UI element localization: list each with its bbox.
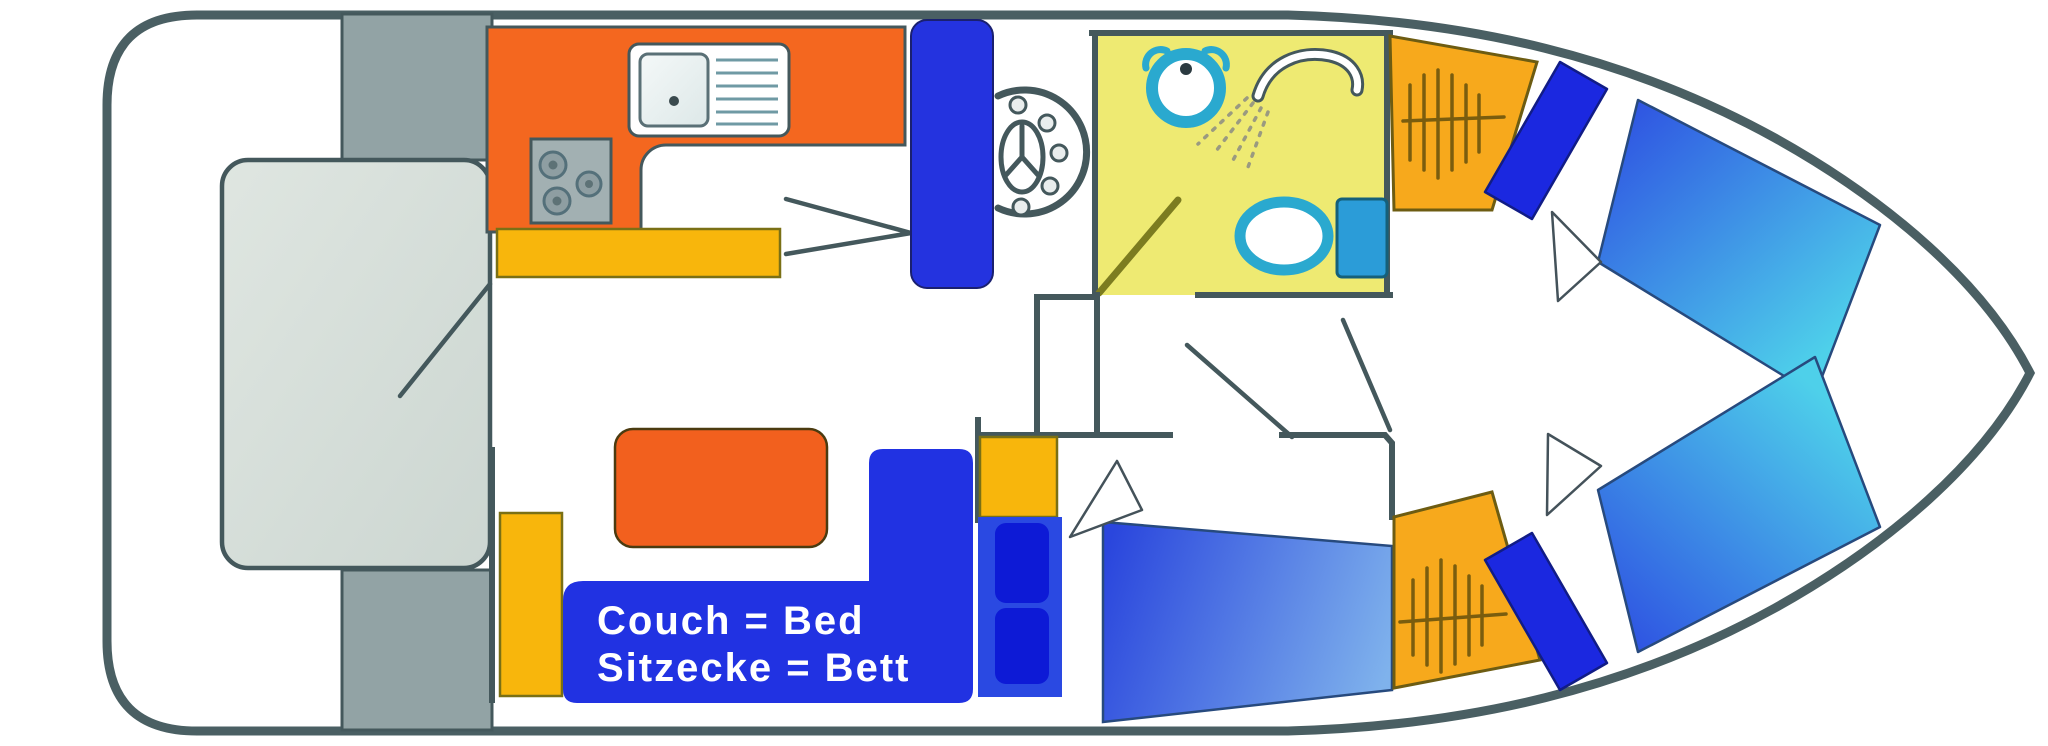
legend-line-2: Sitzecke = Bett [597,646,910,690]
companionway-steps-icon [978,517,1062,697]
toilet-icon [1240,199,1387,277]
corridor-step-table [980,437,1057,517]
helm-seat [911,20,993,288]
kitchen-sink-icon [629,44,789,136]
salon-table [615,429,827,547]
galley-counter-yellow [497,229,780,277]
legend-line-1: Couch = Bed [597,599,865,643]
side-deck-top [342,14,492,160]
floorplan-canvas: Couch = Bed Sitzecke = Bett [0,0,2048,746]
salon-cabinet [500,513,562,696]
aft-cabin-bed [222,160,490,568]
stove-icon [531,139,611,223]
mid-cabin-bed [1103,522,1392,722]
side-deck-bottom [342,570,492,730]
boat-floorplan: Couch = Bed Sitzecke = Bett [0,0,2048,746]
washbasin-icon [1146,50,1227,122]
